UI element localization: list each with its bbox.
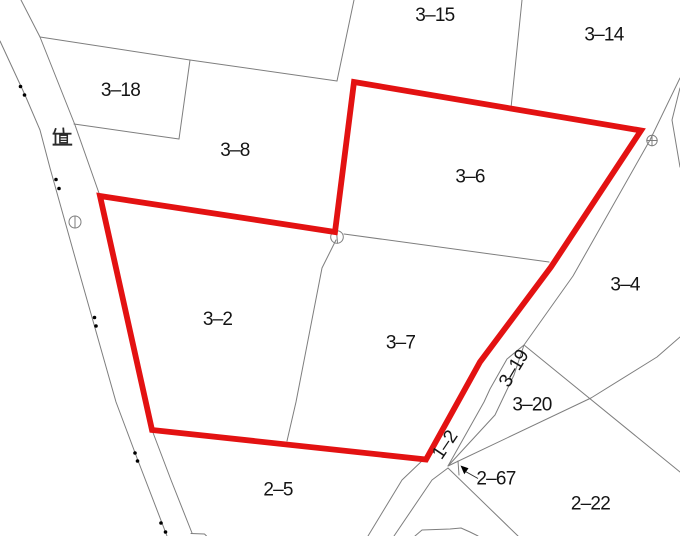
svg-text:3–18: 3–18 bbox=[101, 80, 140, 101]
svg-text:3–14: 3–14 bbox=[584, 24, 624, 45]
svg-text:2–5: 2–5 bbox=[263, 479, 293, 500]
svg-text:3–2: 3–2 bbox=[203, 309, 233, 330]
svg-text:3–4: 3–4 bbox=[610, 274, 641, 295]
svg-text:3–20: 3–20 bbox=[512, 394, 551, 415]
svg-text:3–8: 3–8 bbox=[220, 140, 250, 161]
svg-text:3–6: 3–6 bbox=[455, 166, 485, 187]
svg-text:2–22: 2–22 bbox=[571, 493, 610, 514]
svg-text:3–7: 3–7 bbox=[386, 332, 416, 353]
svg-text:3–15: 3–15 bbox=[415, 5, 454, 26]
svg-text:2–67: 2–67 bbox=[476, 468, 515, 489]
